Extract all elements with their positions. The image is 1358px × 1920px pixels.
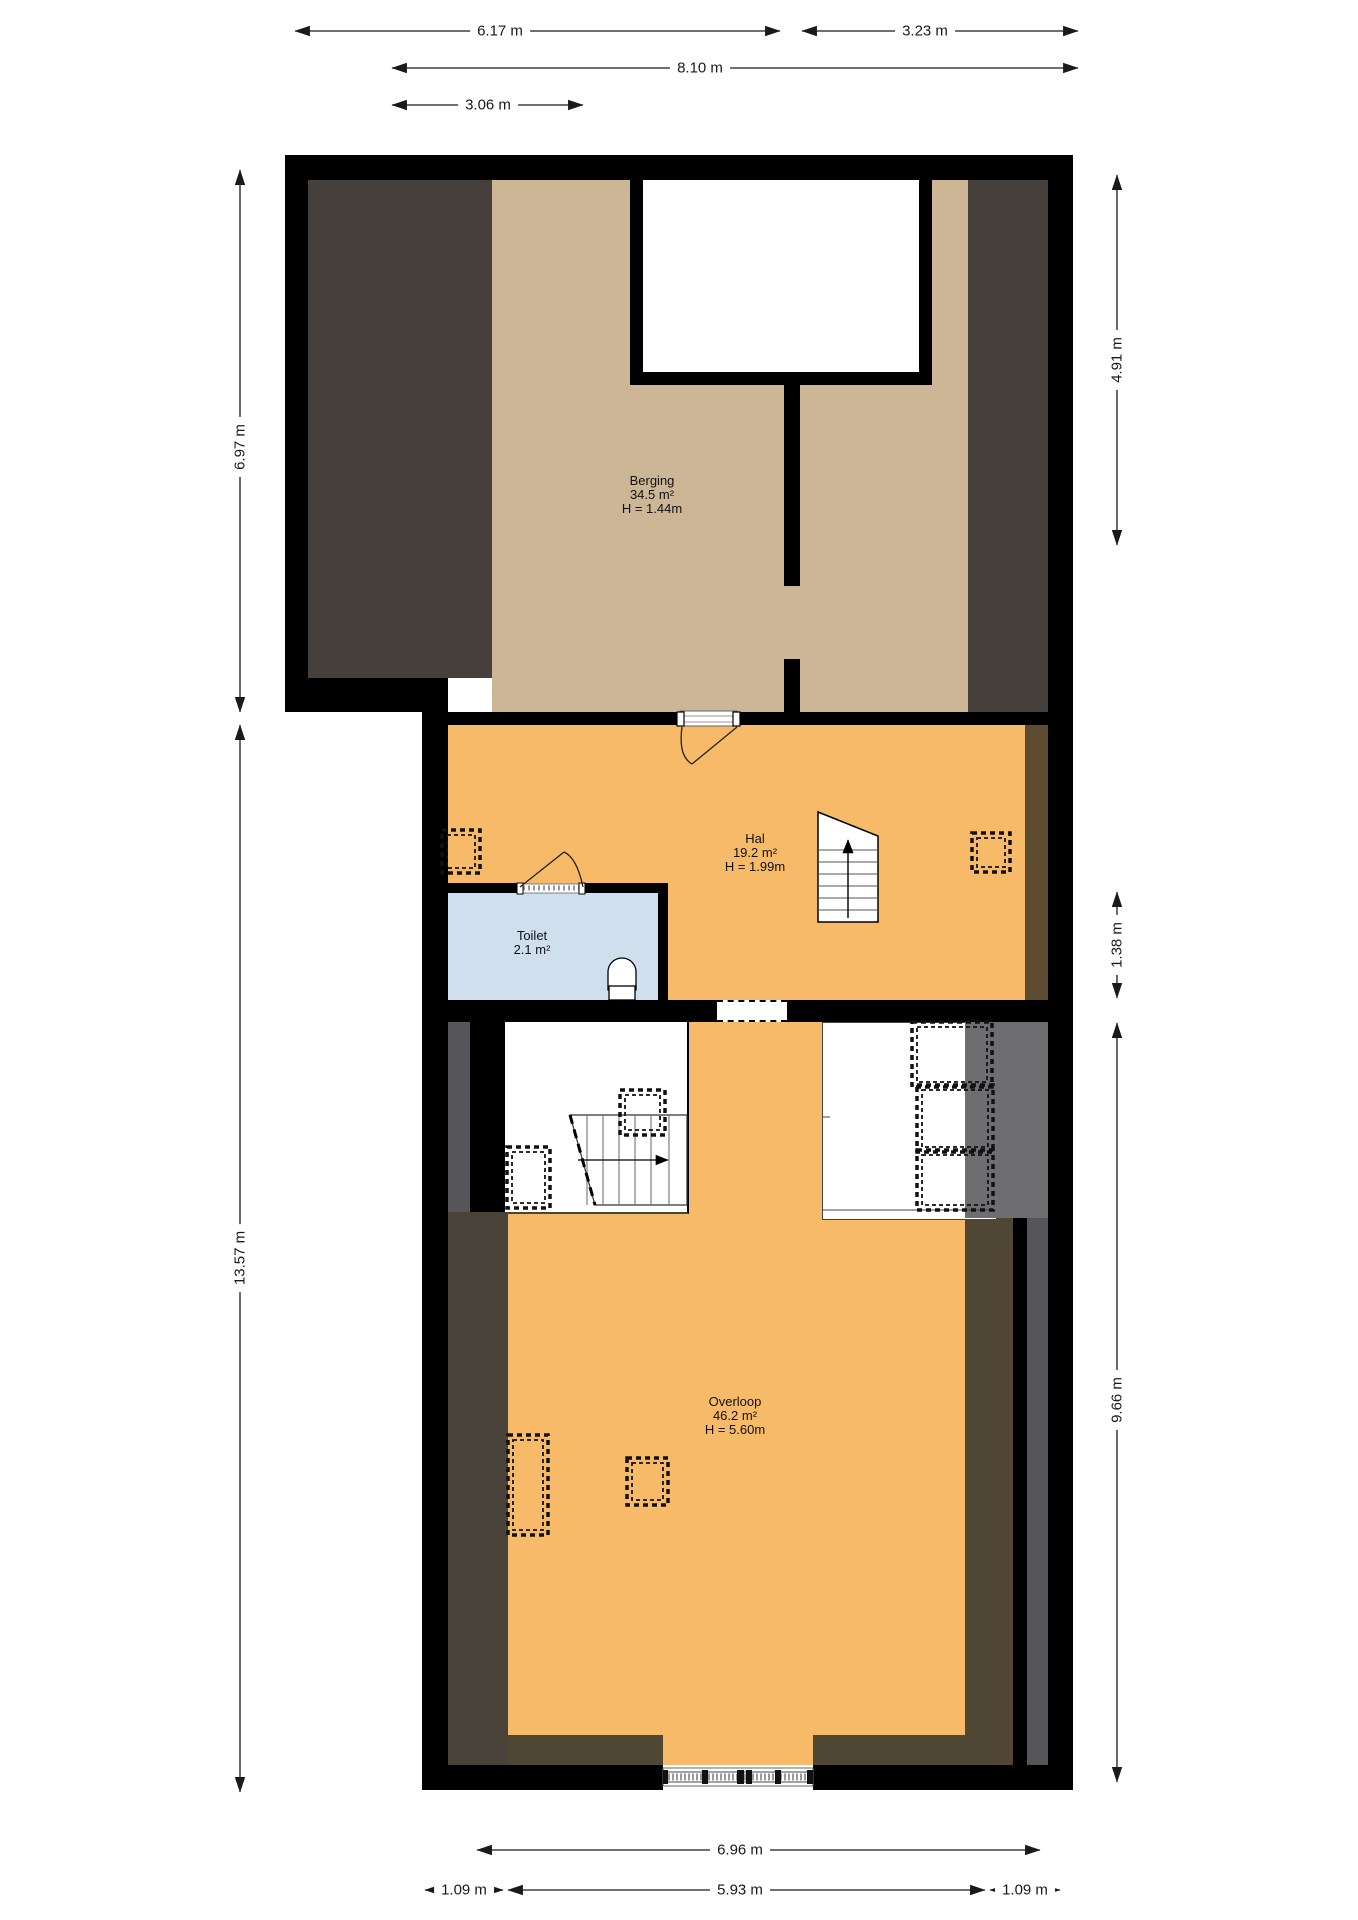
berging-name: Berging	[622, 474, 682, 488]
berging-height: H = 1.44m	[622, 502, 682, 516]
hal-height: H = 1.99m	[725, 860, 785, 874]
dim-bottom-109-r: 1.09 m	[995, 1882, 1055, 1899]
toilet-name: Toilet	[514, 929, 551, 943]
toilet-area: 2.1 m²	[514, 943, 551, 957]
dim-bottom-696: 6.96 m	[710, 1842, 770, 1859]
plan-drawing-layer	[0, 0, 1358, 1920]
hal-label: Hal 19.2 m² H = 1.99m	[725, 832, 785, 874]
hal-area: 19.2 m²	[725, 846, 785, 860]
dim-top-306: 3.06 m	[458, 97, 518, 114]
dim-bottom-109-l: 1.09 m	[434, 1882, 494, 1899]
dim-top-617: 6.17 m	[470, 23, 530, 40]
dim-right-491: 4.91 m	[1109, 330, 1126, 390]
hal-stairs	[818, 812, 878, 922]
dim-top-810: 8.10 m	[670, 60, 730, 77]
berging-door	[677, 711, 740, 764]
toilet-fixture	[608, 958, 636, 1000]
toilet-door	[517, 852, 585, 894]
dim-right-138: 1.38 m	[1109, 915, 1126, 975]
overloop-area: 46.2 m²	[705, 1409, 765, 1423]
dim-left-697: 6.97 m	[232, 417, 249, 477]
overloop-height: H = 5.60m	[705, 1423, 765, 1437]
overloop-label: Overloop 46.2 m² H = 5.60m	[705, 1395, 765, 1437]
hal-name: Hal	[725, 832, 785, 846]
overloop-stairs	[570, 1115, 687, 1205]
dim-bottom-593: 5.93 m	[710, 1882, 770, 1899]
berging-area: 34.5 m²	[622, 488, 682, 502]
dim-right-966: 9.66 m	[1109, 1370, 1126, 1430]
dimension-lines	[240, 31, 1117, 1890]
closet-lines	[822, 1117, 995, 1210]
berging-label: Berging 34.5 m² H = 1.44m	[622, 474, 682, 516]
dim-top-323: 3.23 m	[895, 23, 955, 40]
overloop-name: Overloop	[705, 1395, 765, 1409]
bottom-door	[663, 1768, 813, 1786]
dim-left-1357: 13.57 m	[232, 1224, 249, 1292]
toilet-label: Toilet 2.1 m²	[514, 929, 551, 957]
floor-plan: Berging 34.5 m² H = 1.44m Hal 19.2 m² H …	[0, 0, 1358, 1920]
